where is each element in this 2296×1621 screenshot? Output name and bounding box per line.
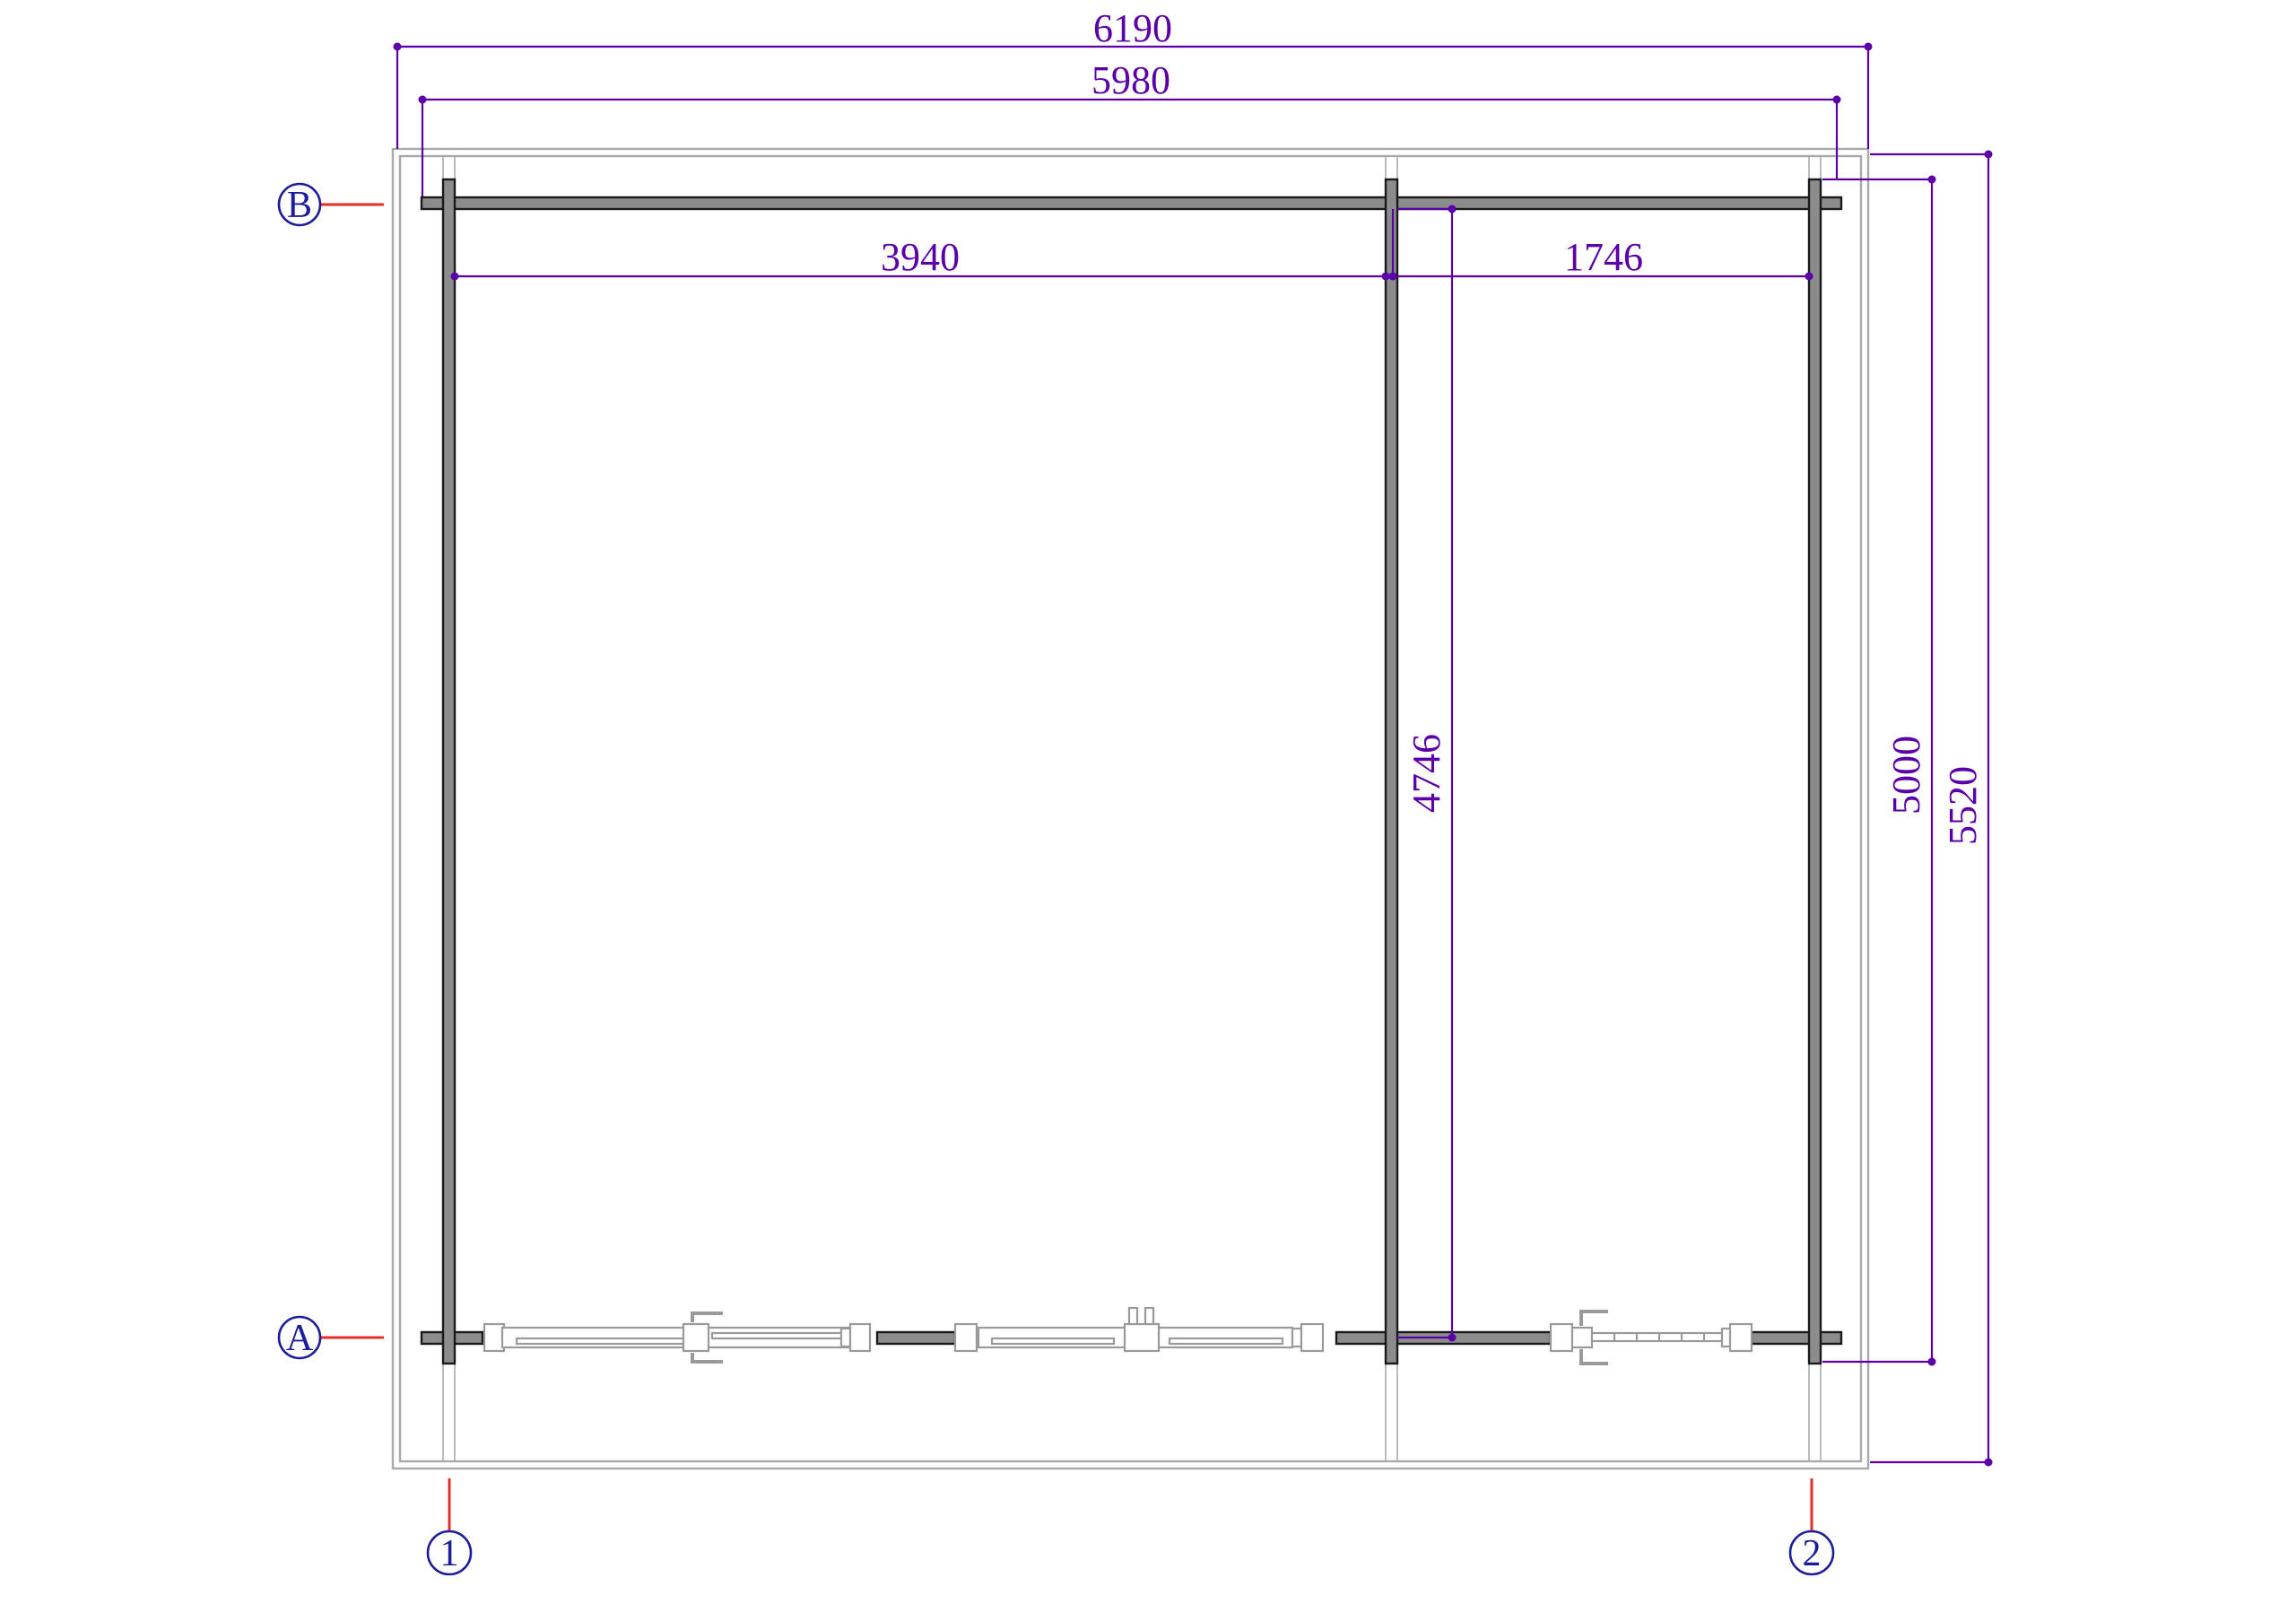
window-center-mullion (1125, 1324, 1159, 1351)
dim-wall-depth-label: 5000 (1884, 736, 1928, 815)
dim-dot (1985, 151, 1993, 159)
dim-dot (419, 96, 427, 104)
grid-marker-b-label: B (287, 185, 312, 226)
window-right-cap (1301, 1324, 1323, 1351)
sliding-door-handle-bottom (692, 1353, 723, 1362)
door-leaf (1592, 1333, 1731, 1341)
dim-dot (1985, 1459, 1993, 1467)
dim-wall-width-label: 5980 (1091, 58, 1170, 102)
floor-plan-drawing: 6190 5980 3940 1746 4746 5000 (0, 0, 2296, 1621)
dim-dot (451, 273, 459, 281)
window-handle-right (1145, 1308, 1153, 1324)
dim-dot (1928, 176, 1936, 184)
window-right-jamb (1292, 1329, 1301, 1346)
dim-dot (1865, 43, 1873, 51)
window-handle-left (1129, 1308, 1137, 1324)
window-left-cap (955, 1324, 977, 1351)
sliding-door-handle-top (692, 1313, 723, 1322)
window-panel-right (1170, 1338, 1283, 1344)
log-tip-connectors (443, 157, 1821, 1461)
dim-dot (1448, 205, 1457, 214)
dim-dot (1448, 1334, 1457, 1342)
dim-dot (1389, 273, 1397, 281)
sliding-door-right-cap (850, 1324, 870, 1351)
dim-interior-depth: 4746 (1397, 205, 1457, 1342)
grid-marker-1-label: 1 (440, 1533, 459, 1574)
dim-right-room-label: 1746 (1564, 235, 1643, 279)
dim-dot (1805, 273, 1813, 281)
dim-wall-width: 5980 (419, 58, 1841, 196)
grid-marker-a-label: A (286, 1318, 314, 1359)
left-wall (443, 179, 455, 1364)
dim-dot (1928, 1358, 1936, 1366)
door-hinge-stile (1572, 1328, 1592, 1347)
sliding-door-left-cap (484, 1324, 504, 1351)
roof-outline-outer (393, 149, 1868, 1468)
right-wall (1809, 179, 1821, 1364)
dim-dot (1833, 96, 1841, 104)
window-panel-left (992, 1338, 1114, 1344)
top-wall (422, 197, 1841, 209)
dim-dot (394, 43, 402, 51)
sliding-door-meeting-stile (683, 1324, 709, 1351)
dim-wall-depth: 5000 (1822, 176, 1936, 1366)
door-right-cap (1730, 1324, 1752, 1351)
dim-roof-width-label: 6190 (1093, 6, 1172, 50)
door-handle-top (1581, 1312, 1608, 1326)
middle-partition-wall (1386, 179, 1397, 1364)
door-left-cap (1551, 1324, 1572, 1351)
dim-interior-depth-label: 4746 (1405, 734, 1448, 813)
dim-dot (1382, 273, 1390, 281)
dim-roof-depth-label: 5520 (1941, 766, 1985, 845)
grid-marker-2-label: 2 (1803, 1533, 1822, 1574)
dim-left-room-label: 3940 (881, 235, 960, 279)
sliding-door (484, 1313, 870, 1362)
door-handle-bottom (1581, 1349, 1608, 1364)
bottom-wall-segment-2 (877, 1332, 955, 1344)
floor-plan-canvas: 6190 5980 3940 1746 4746 5000 (0, 0, 2296, 1621)
bottom-wall-segment-4 (1752, 1332, 1841, 1344)
grid-markers: B A 1 2 (279, 184, 1833, 1574)
sliding-door-panel-left (517, 1338, 687, 1344)
french-window (955, 1308, 1323, 1351)
dim-left-room-width: 3940 (451, 235, 1390, 281)
roof-outline-inner (400, 156, 1861, 1461)
sliding-door-right-jamb (841, 1329, 850, 1346)
roof-outline (393, 149, 1868, 1468)
walls (422, 179, 1841, 1364)
sliding-door-panel-right (712, 1333, 861, 1338)
entrance-door (1551, 1312, 1752, 1364)
